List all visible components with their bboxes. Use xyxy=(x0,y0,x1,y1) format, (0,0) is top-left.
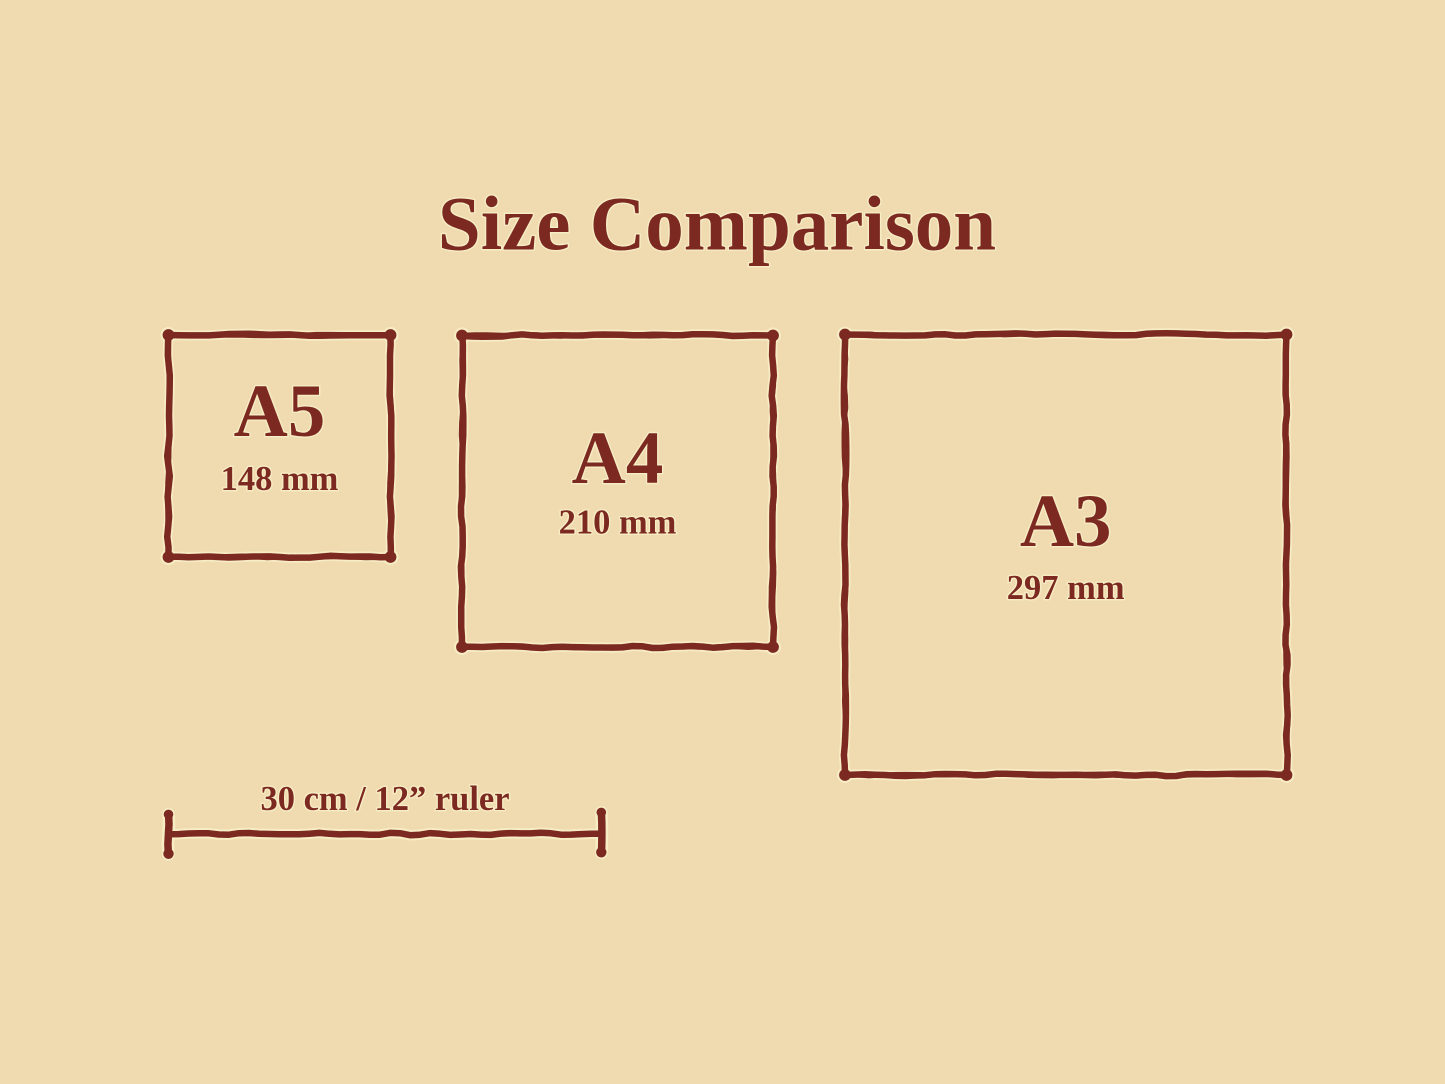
svg-text:A3: A3 xyxy=(1020,480,1112,563)
svg-text:148 mm: 148 mm xyxy=(221,460,339,498)
svg-text:210 mm: 210 mm xyxy=(559,504,677,542)
svg-text:30 cm / 12” ruler: 30 cm / 12” ruler xyxy=(260,780,509,818)
svg-text:297 mm: 297 mm xyxy=(1007,569,1125,607)
svg-text:A4: A4 xyxy=(572,417,664,500)
svg-text:A5: A5 xyxy=(234,370,326,453)
svg-text:Size Comparison: Size Comparison xyxy=(438,181,996,267)
